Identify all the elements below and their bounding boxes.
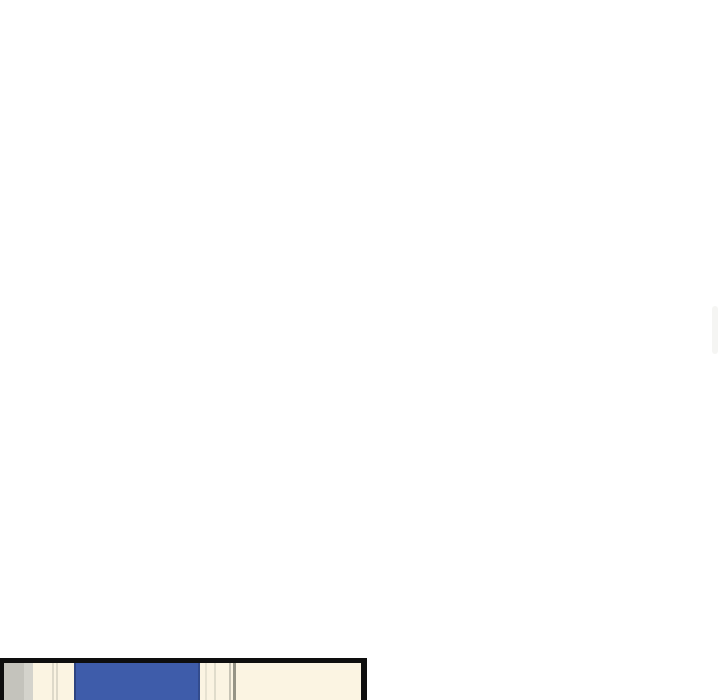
page-background <box>0 0 720 700</box>
wall-seam-line <box>229 663 231 700</box>
wall-seam-line <box>205 663 207 700</box>
gray-wall-highlight <box>24 663 33 700</box>
wall-seam-line <box>56 663 58 700</box>
panel-border-right <box>361 658 367 700</box>
gray-wall <box>4 663 33 700</box>
panel-artwork <box>4 663 361 700</box>
blue-door-edge <box>74 663 76 700</box>
blue-door-edge <box>198 663 200 700</box>
wall-corner-line <box>233 663 236 700</box>
blue-door <box>74 663 200 700</box>
wall-seam-line <box>52 663 54 700</box>
wall-seam-line <box>214 663 216 700</box>
comic-panel-fragment <box>0 658 367 700</box>
scrollbar-thumb[interactable] <box>712 306 718 354</box>
